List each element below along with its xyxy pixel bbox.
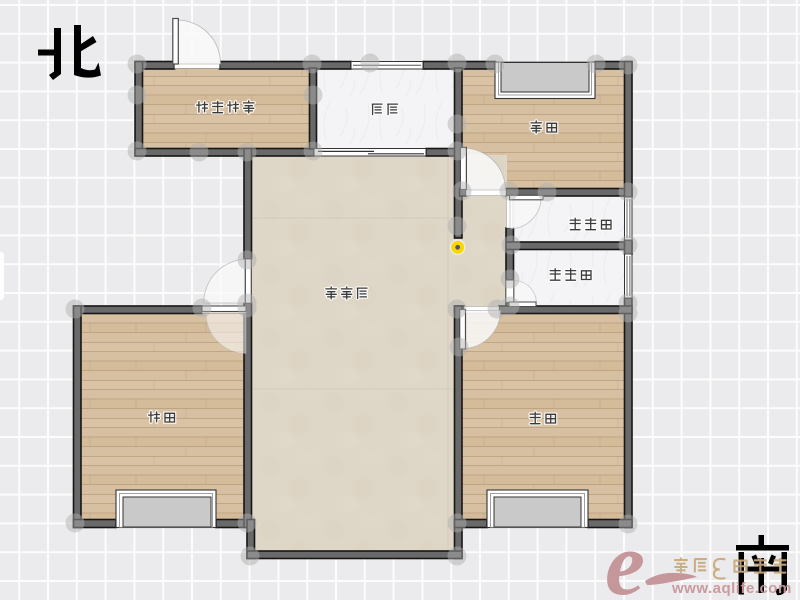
svg-text:e: e — [605, 515, 645, 600]
svg-text:www.aqlife.com: www.aqlife.com — [671, 580, 792, 597]
